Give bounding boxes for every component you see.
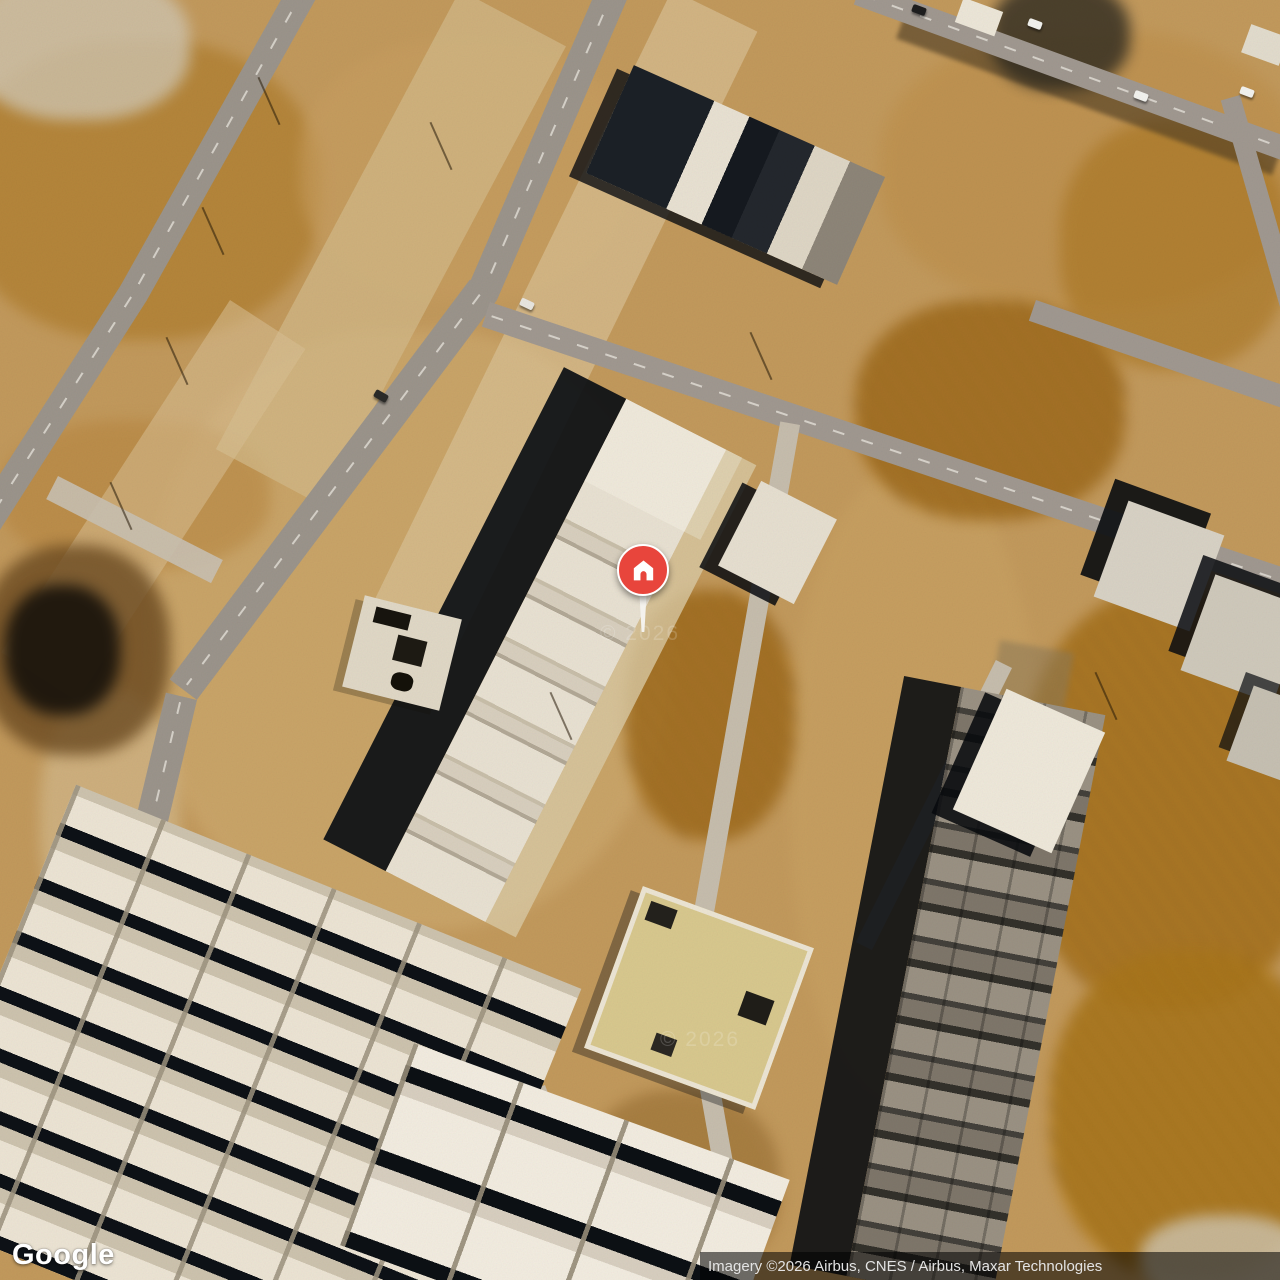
google-logo[interactable]: Google <box>12 1239 115 1272</box>
terrain-patch <box>0 545 170 755</box>
building <box>392 635 427 667</box>
building <box>1226 685 1280 784</box>
road <box>1029 300 1280 409</box>
pole-shadow <box>110 482 133 530</box>
terrain-patch <box>46 476 223 583</box>
walled-yard <box>584 886 814 1110</box>
shed <box>645 901 678 929</box>
attribution-text: Imagery ©2026 Airbus, CNES / Airbus, Max… <box>708 1258 1102 1275</box>
road-top-right <box>854 0 1280 169</box>
attribution-bar: Imagery ©2026 Airbus, CNES / Airbus, Max… <box>700 1252 1280 1280</box>
building <box>373 606 412 630</box>
terrain-patch <box>0 0 190 120</box>
terrain-patch <box>1050 950 1280 1280</box>
pole-shadow <box>202 207 225 255</box>
pole-shadow <box>166 337 189 385</box>
path <box>633 560 652 580</box>
marker-head <box>617 544 669 596</box>
car <box>519 297 535 310</box>
car <box>1027 18 1043 30</box>
pole-shadow <box>750 332 773 380</box>
building <box>1241 24 1280 66</box>
road-main-west <box>0 284 147 530</box>
shed <box>737 991 774 1026</box>
satellite-map-view[interactable]: © 2026 © 2026 Google Imagery ©2026 Airbu… <box>0 0 1280 1280</box>
shed <box>650 1033 677 1057</box>
terrain-patch <box>5 585 120 715</box>
pole-shadow <box>258 77 281 125</box>
car <box>1239 86 1255 98</box>
building-row-top-dark <box>586 65 885 285</box>
terrain-patch <box>1 300 305 701</box>
home-icon <box>630 557 657 584</box>
pole-shadow <box>430 122 453 170</box>
terrain-patch <box>0 40 320 340</box>
building <box>389 670 415 693</box>
road-main-west <box>121 0 322 300</box>
